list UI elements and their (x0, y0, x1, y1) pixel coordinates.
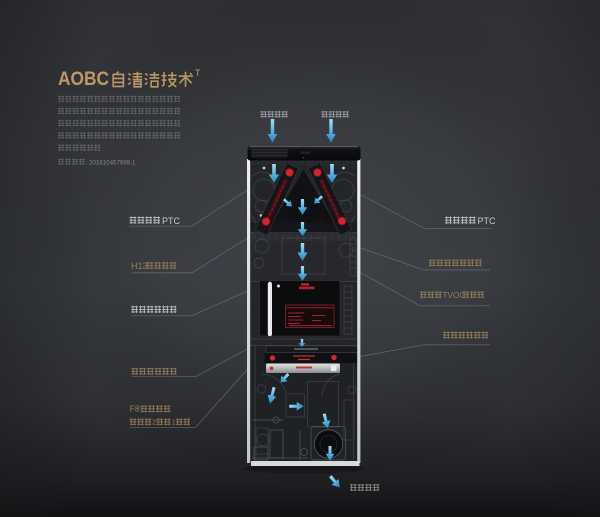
svg-text:: 201810457669.1: : 201810457669.1 (86, 159, 136, 166)
svg-text:2: 2 (152, 418, 156, 427)
svg-text:PTC: PTC (162, 216, 181, 226)
svg-text:1: 1 (172, 418, 176, 427)
svg-text:H13: H13 (131, 261, 148, 271)
svg-text:TVOC: TVOC (443, 291, 466, 300)
svg-text:F8: F8 (130, 404, 140, 414)
svg-text:PTC: PTC (478, 216, 497, 226)
svg-text:AOBC: AOBC (58, 69, 109, 90)
svg-text:T: T (195, 68, 201, 78)
svg-text:Haier: Haier (301, 150, 312, 155)
